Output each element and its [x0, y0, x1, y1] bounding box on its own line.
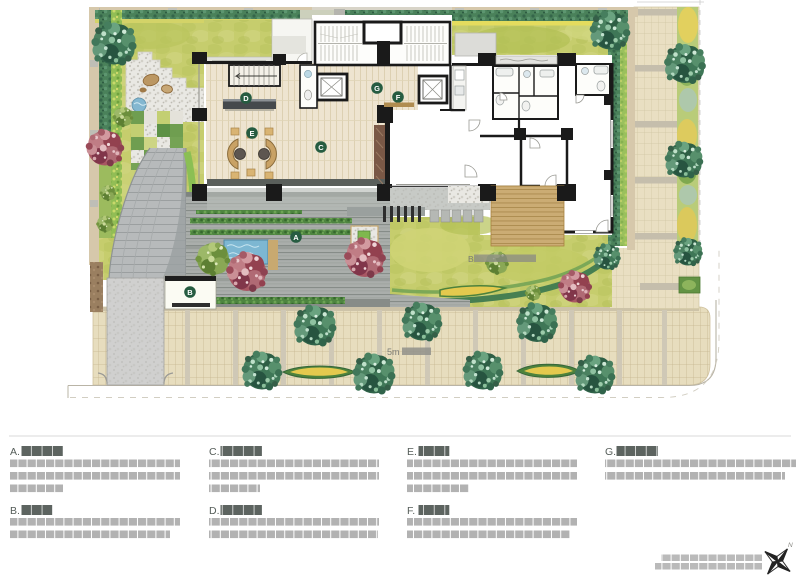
svg-text:E.: E.: [407, 446, 417, 458]
svg-text:G.: G.: [605, 446, 616, 458]
svg-text:B.: B.: [10, 505, 20, 517]
svg-text:G: G: [374, 84, 380, 93]
svg-text:B: B: [468, 254, 474, 264]
svg-text:A: A: [293, 233, 299, 242]
svg-text:N: N: [788, 542, 793, 549]
svg-text:D: D: [243, 94, 249, 103]
svg-text:B: B: [187, 288, 193, 297]
svg-text:C.: C.: [209, 446, 220, 458]
svg-text:F.: F.: [407, 505, 415, 517]
svg-text:C: C: [318, 143, 324, 152]
svg-text:5m: 5m: [387, 347, 400, 357]
svg-text:A.: A.: [10, 446, 20, 458]
svg-text:D.: D.: [209, 505, 220, 517]
svg-text:E: E: [249, 129, 254, 138]
svg-text:F: F: [396, 93, 401, 102]
